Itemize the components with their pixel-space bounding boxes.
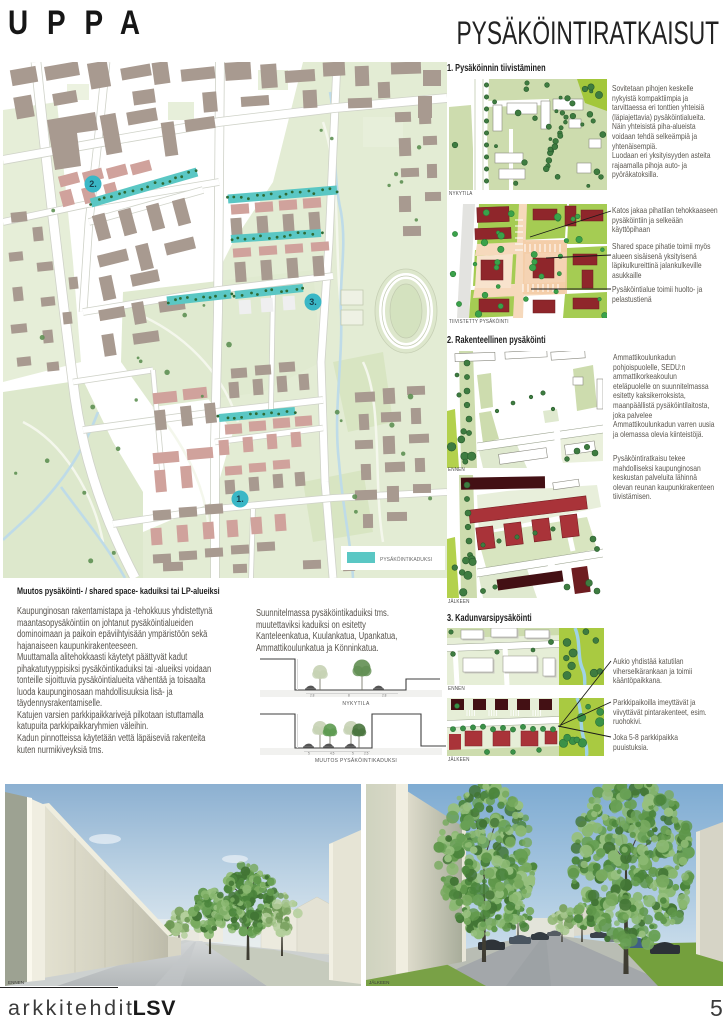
svg-text:NYKYTILA: NYKYTILA (342, 701, 370, 707)
svg-text:2.5: 2.5 (364, 752, 369, 756)
svg-text:2.8: 2.8 (382, 694, 387, 698)
svg-text:8: 8 (348, 694, 350, 698)
svg-text:5: 5 (308, 752, 310, 756)
svg-text:5: 5 (352, 752, 354, 756)
svg-text:JÄLKEEN: JÄLKEEN (369, 979, 389, 985)
svg-text:MUUTOS PYSÄKÖINTIKADUKSI: MUUTOS PYSÄKÖINTIKADUKSI (315, 757, 397, 764)
svg-text:2.8: 2.8 (310, 694, 315, 698)
svg-text:4.5: 4.5 (330, 752, 335, 756)
svg-text:ENNEN: ENNEN (8, 980, 24, 985)
